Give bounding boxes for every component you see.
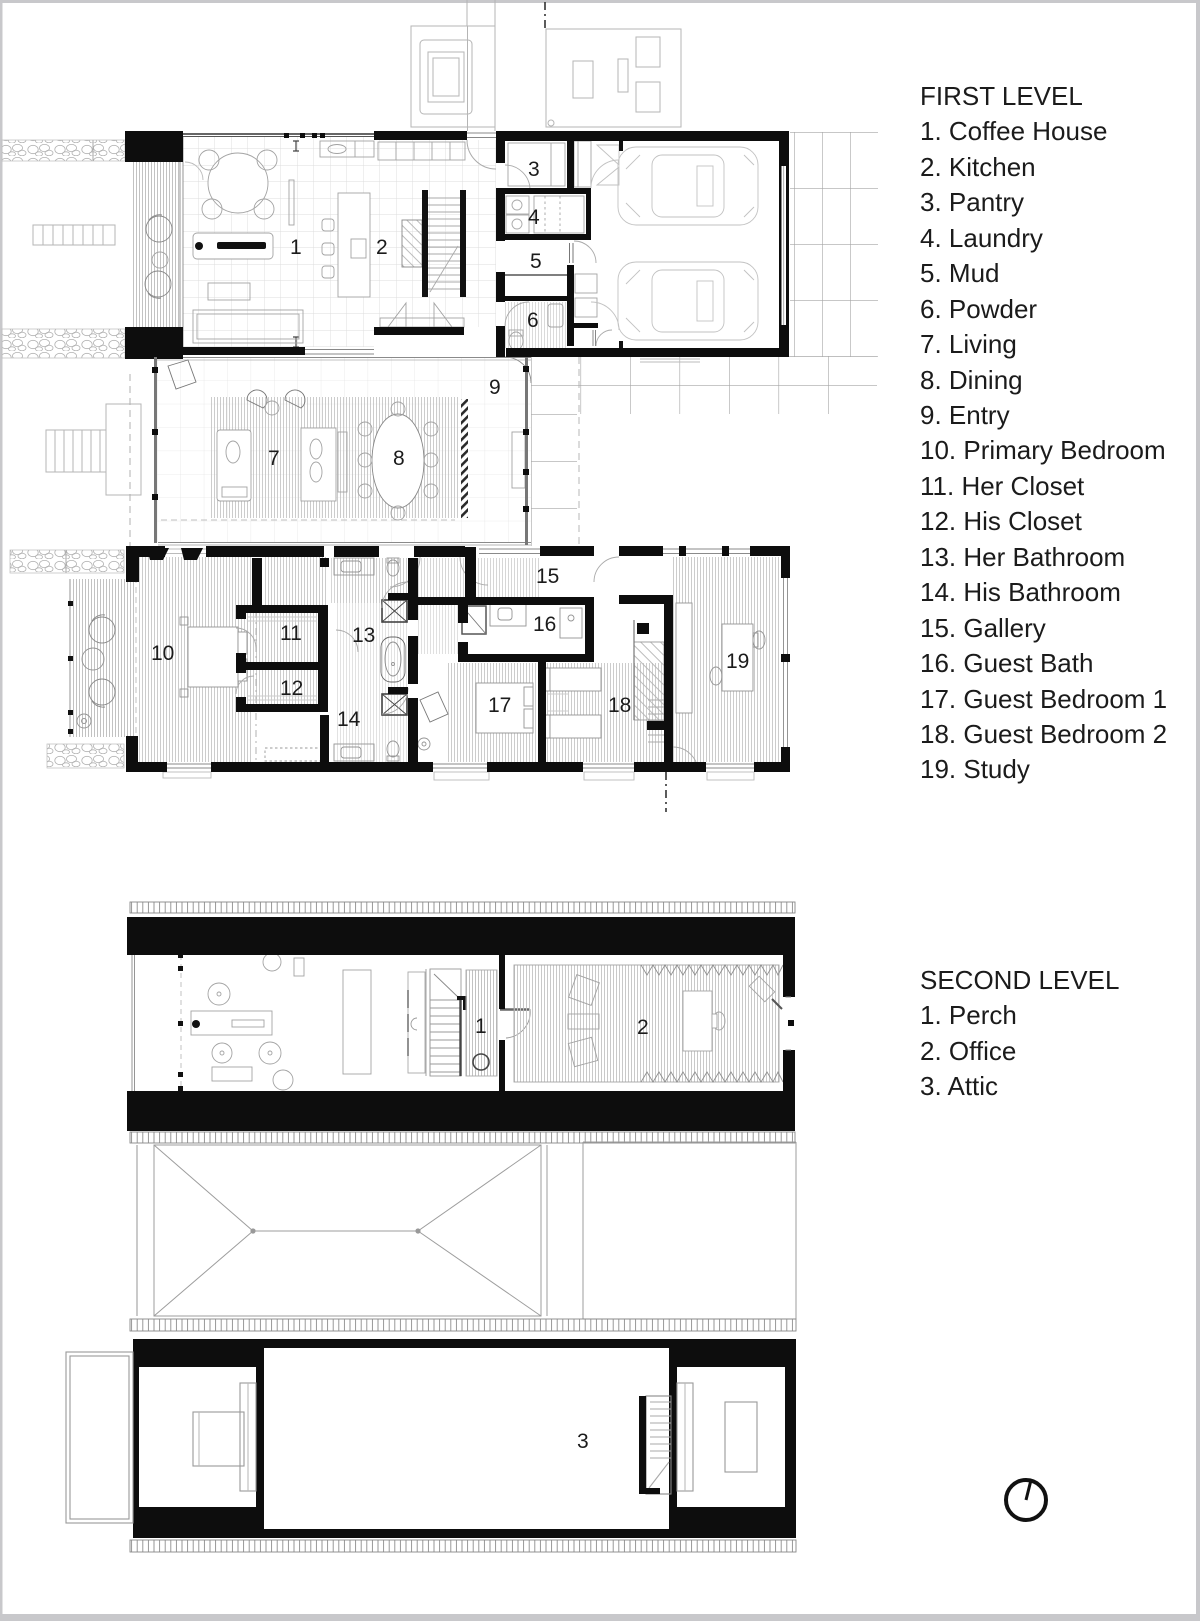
svg-text:6: 6 <box>527 309 539 332</box>
svg-text:11. Her Closet: 11. Her Closet <box>920 471 1085 501</box>
svg-text:12. His Closet: 12. His Closet <box>920 506 1083 536</box>
svg-text:13. Her Bathroom: 13. Her Bathroom <box>920 542 1125 572</box>
svg-text:2: 2 <box>376 236 388 259</box>
svg-text:16: 16 <box>533 613 556 636</box>
svg-text:3: 3 <box>528 158 540 181</box>
svg-text:19: 19 <box>726 650 749 673</box>
svg-text:13: 13 <box>352 624 375 647</box>
svg-text:1. Coffee House: 1. Coffee House <box>920 116 1107 146</box>
svg-text:18. Guest Bedroom 2: 18. Guest Bedroom 2 <box>920 719 1167 749</box>
svg-text:7: 7 <box>268 447 280 470</box>
svg-text:1: 1 <box>290 236 302 259</box>
svg-text:19. Study: 19. Study <box>920 754 1030 784</box>
svg-text:17: 17 <box>488 694 511 717</box>
svg-text:3: 3 <box>577 1430 589 1453</box>
svg-text:9. Entry: 9. Entry <box>920 400 1010 430</box>
svg-text:SECOND LEVEL: SECOND LEVEL <box>920 965 1119 995</box>
svg-text:FIRST LEVEL: FIRST LEVEL <box>920 81 1083 111</box>
svg-text:14. His Bathroom: 14. His Bathroom <box>920 577 1121 607</box>
svg-text:4. Laundry: 4. Laundry <box>920 223 1043 253</box>
svg-text:16. Guest Bath: 16. Guest Bath <box>920 648 1093 678</box>
svg-text:18: 18 <box>608 694 631 717</box>
svg-text:1. Perch: 1. Perch <box>920 1000 1017 1030</box>
svg-text:10: 10 <box>151 642 174 665</box>
svg-text:4: 4 <box>528 206 540 229</box>
svg-text:3. Attic: 3. Attic <box>920 1071 998 1101</box>
svg-text:5. Mud: 5. Mud <box>920 258 1000 288</box>
svg-text:7. Living: 7. Living <box>920 329 1017 359</box>
svg-text:12: 12 <box>280 677 303 700</box>
svg-text:6. Powder: 6. Powder <box>920 294 1037 324</box>
svg-text:8. Dining: 8. Dining <box>920 365 1023 395</box>
svg-text:2: 2 <box>637 1016 649 1039</box>
svg-text:1: 1 <box>475 1015 487 1038</box>
svg-text:11: 11 <box>280 622 302 645</box>
svg-text:2. Office: 2. Office <box>920 1036 1016 1066</box>
svg-text:2. Kitchen: 2. Kitchen <box>920 152 1036 182</box>
svg-text:5: 5 <box>530 250 542 273</box>
svg-text:10. Primary Bedroom: 10. Primary Bedroom <box>920 435 1166 465</box>
svg-text:15: 15 <box>536 565 559 588</box>
svg-text:9: 9 <box>489 376 501 399</box>
svg-text:15. Gallery: 15. Gallery <box>920 613 1046 643</box>
svg-text:17. Guest Bedroom 1: 17. Guest Bedroom 1 <box>920 684 1167 714</box>
svg-text:3. Pantry: 3. Pantry <box>920 187 1024 217</box>
svg-text:14: 14 <box>337 708 361 731</box>
svg-text:8: 8 <box>393 447 405 470</box>
